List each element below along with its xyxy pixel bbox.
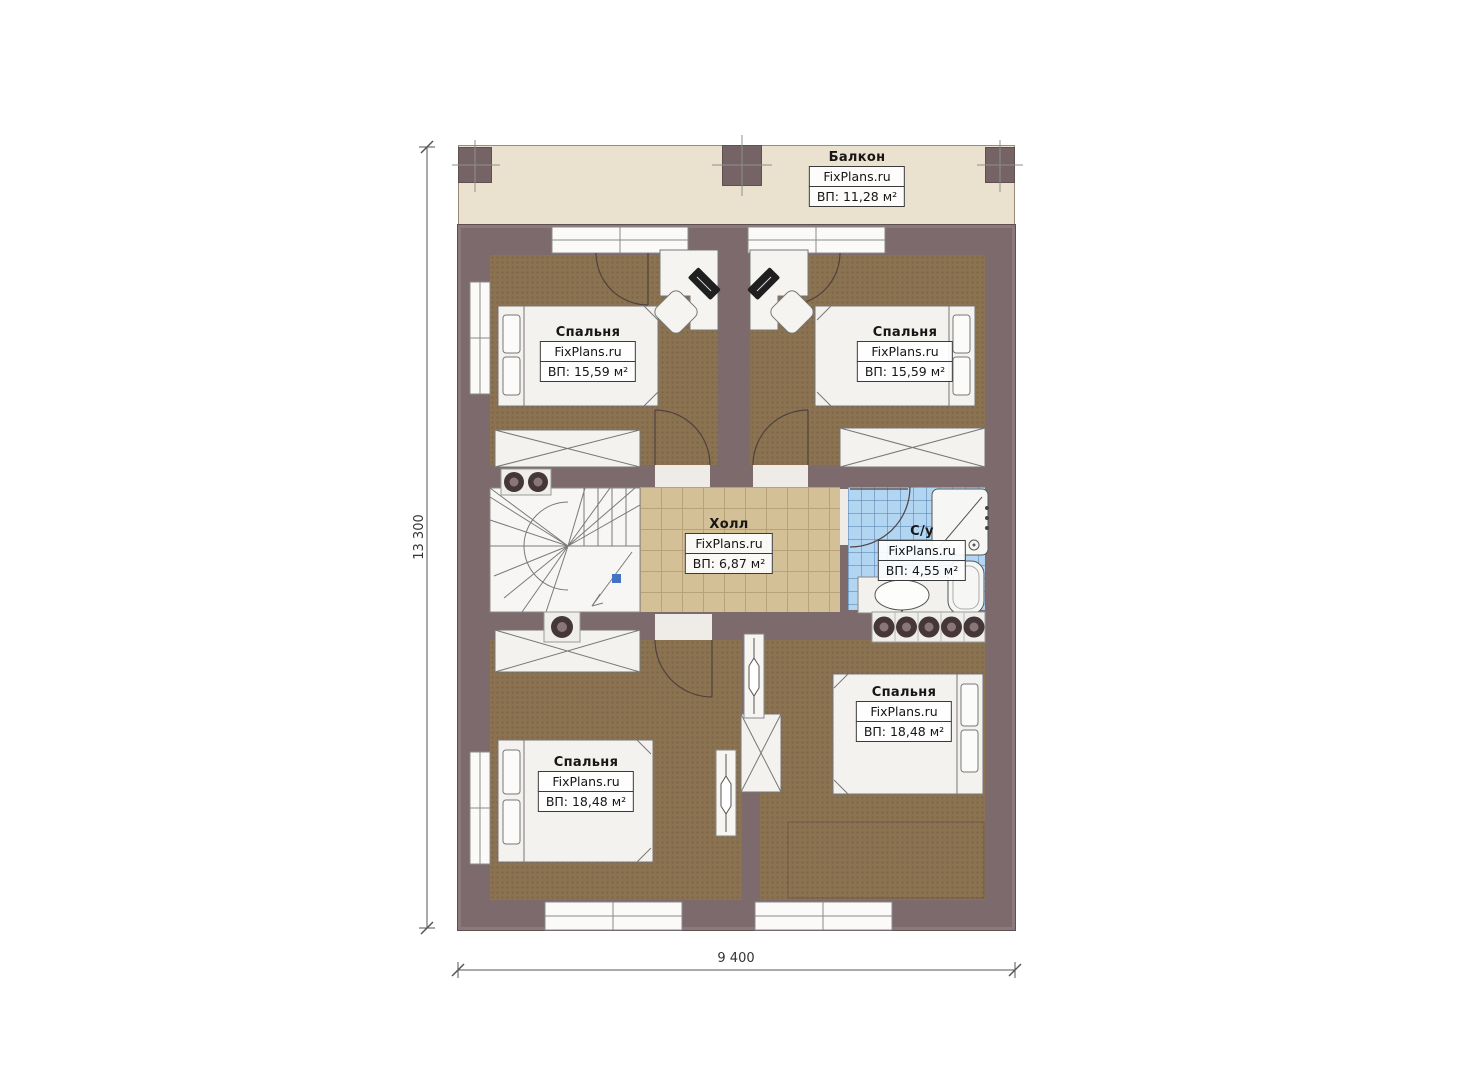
hall-label: Холл FixPlans.ru ВП: 6,87 м²	[685, 517, 773, 574]
bedroom-bottom-left-label: Спальня FixPlans.ru ВП: 18,48 м²	[538, 755, 634, 812]
room-title: Спальня	[540, 325, 636, 340]
bedroom-bottom-right-floor	[760, 640, 985, 900]
room-area: ВП: 18,48 м²	[538, 791, 634, 812]
door-opening-bedroom-top-left	[655, 465, 710, 487]
bedroom-bottom-right-label: Спальня FixPlans.ru ВП: 18,48 м²	[856, 685, 952, 742]
brand-watermark: FixPlans.ru	[685, 533, 773, 554]
room-title: Холл	[685, 517, 773, 532]
room-title: Спальня	[538, 755, 634, 770]
room-area: ВП: 4,55 м²	[878, 560, 966, 581]
door-opening-bedroom-bottom-left	[655, 614, 712, 640]
brand-watermark: FixPlans.ru	[878, 540, 966, 561]
room-area: ВП: 6,87 м²	[685, 553, 773, 574]
bathroom-label: С/у FixPlans.ru ВП: 4,55 м²	[878, 524, 966, 581]
brand-watermark: FixPlans.ru	[538, 771, 634, 792]
room-title: Спальня	[857, 325, 953, 340]
room-area: ВП: 15,59 м²	[540, 361, 636, 382]
door-opening-bathroom	[840, 489, 848, 545]
room-area: ВП: 18,48 м²	[856, 721, 952, 742]
brand-watermark: FixPlans.ru	[857, 341, 953, 362]
balcony-pillar-left	[458, 147, 492, 183]
brand-watermark: FixPlans.ru	[856, 701, 952, 722]
dimension-height: 13 300	[412, 512, 426, 562]
balcony-label: Балкон FixPlans.ru ВП: 11,28 м²	[809, 150, 905, 207]
dimension-width: 9 400	[714, 951, 758, 966]
bedroom-top-right-label: Спальня FixPlans.ru ВП: 15,59 м²	[857, 325, 953, 382]
floor-plan-page: Балкон FixPlans.ru ВП: 11,28 м² Спальня …	[0, 0, 1474, 1080]
brand-watermark: FixPlans.ru	[809, 166, 905, 187]
door-opening-bedroom-top-right	[753, 465, 808, 487]
room-area: ВП: 15,59 м²	[857, 361, 953, 382]
balcony-pillar-right	[985, 147, 1015, 183]
room-title: С/у	[878, 524, 966, 539]
brand-watermark: FixPlans.ru	[540, 341, 636, 362]
balcony-pillar-middle	[722, 145, 762, 186]
room-title: Балкон	[809, 150, 905, 165]
bedroom-top-left-label: Спальня FixPlans.ru ВП: 15,59 м²	[540, 325, 636, 382]
room-title: Спальня	[856, 685, 952, 700]
room-area: ВП: 11,28 м²	[809, 186, 905, 207]
